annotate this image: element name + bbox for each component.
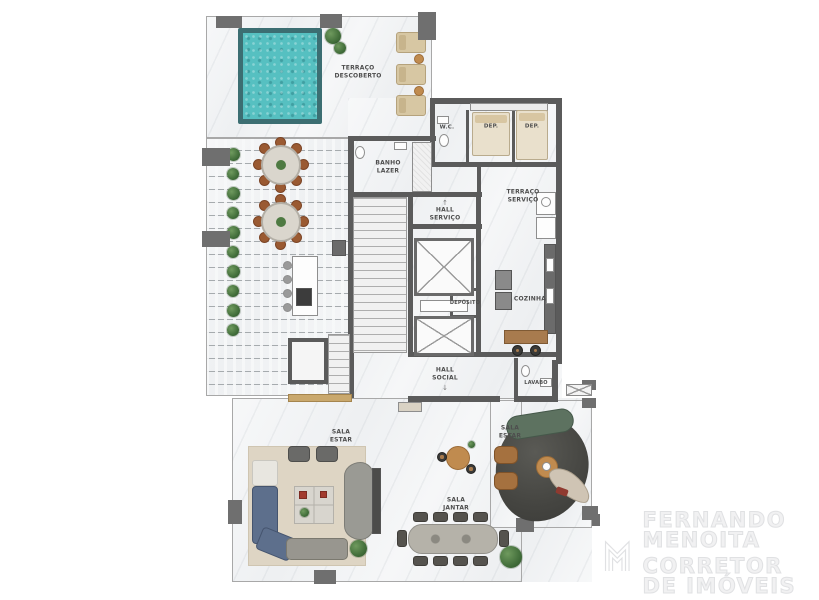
- bar-stool: [283, 303, 292, 312]
- elevator: [414, 238, 474, 296]
- column: [418, 12, 436, 40]
- wall: [352, 136, 436, 141]
- wall: [408, 194, 413, 356]
- side-table: [414, 86, 424, 96]
- bbq-counter: [332, 240, 346, 256]
- stove: [546, 288, 554, 304]
- wall: [556, 98, 562, 244]
- wall: [512, 110, 515, 167]
- chaise-curved: [344, 462, 374, 540]
- console-table: [398, 402, 422, 412]
- room-label-sala-jantar: SALA JANTAR: [443, 497, 469, 512]
- dining-chair: [473, 512, 488, 522]
- side-stool: [466, 464, 476, 474]
- room-label-lavabo: LAVABO: [524, 380, 547, 386]
- dining-chair: [433, 556, 448, 566]
- logo-tagline: CORRETOR DE IMÓVEIS: [643, 557, 802, 597]
- hedge-plant: [227, 207, 239, 219]
- bar-counter: [292, 256, 318, 316]
- small-plant: [468, 441, 475, 448]
- table-top: [261, 202, 301, 242]
- sun-lounger: [396, 64, 426, 85]
- room-label-cozinha: COZINHA: [514, 295, 546, 303]
- bar-stool: [283, 289, 292, 298]
- duct-shaft: [566, 384, 592, 396]
- dining-chair: [413, 556, 428, 566]
- entry-arrow-icon: ↑: [442, 199, 448, 207]
- bed: [472, 112, 510, 156]
- dining-chair: [397, 530, 407, 547]
- elevator: [414, 316, 474, 356]
- tv-console: [372, 468, 381, 534]
- hedge-plant: [227, 246, 239, 258]
- wc-toilet: [439, 134, 449, 147]
- room-label-sala-estar-left: SALA ESTAR: [330, 429, 352, 444]
- room-label-banho-lazer: BANHO LAZER: [375, 160, 400, 175]
- kitchen-island: [504, 330, 548, 344]
- swimming-pool: [238, 28, 322, 124]
- lavabo-toilet: [521, 365, 530, 377]
- room-label-terraco-descoberto: TERRAÇO DESCOBERTO: [334, 65, 381, 80]
- private-elevator: [288, 338, 328, 384]
- column: [202, 231, 230, 247]
- sofa-gray: [286, 538, 348, 560]
- column: [320, 14, 342, 28]
- sink: [394, 142, 407, 150]
- dining-table: [408, 524, 498, 554]
- social-stairs: [328, 334, 350, 394]
- column: [592, 514, 600, 526]
- wall: [410, 224, 482, 229]
- wc-sink: [437, 116, 449, 124]
- bed: [516, 110, 548, 160]
- wall: [514, 358, 518, 402]
- table-decor: [299, 491, 307, 499]
- hedge-plant: [227, 265, 240, 278]
- brand-logo: FERNANDO MENOITA CORRETOR DE IMÓVEIS: [602, 516, 802, 592]
- logo-line2: MENOITA: [643, 531, 802, 551]
- wall: [466, 110, 469, 167]
- floor-plant: [350, 540, 367, 557]
- entry-arrow-icon: ↓: [442, 384, 448, 392]
- armchair: [288, 446, 310, 462]
- washer-drum: [541, 197, 551, 207]
- room-label-deposito: DEPÓSITO: [450, 300, 480, 306]
- table-decor: [320, 491, 327, 498]
- table-plant: [300, 508, 309, 517]
- wall: [430, 162, 562, 167]
- room-label-hall-servico: HALL SERVIÇO: [430, 207, 461, 222]
- shower: [412, 142, 432, 192]
- column: [228, 500, 242, 524]
- round-dining-table: [253, 194, 309, 250]
- side-table: [414, 54, 424, 64]
- bar-stool: [283, 261, 292, 270]
- hedge-plant: [227, 168, 239, 180]
- floorplan-canvas: TERRAÇO DESCOBERTO W.C. DEP. DEP. BANHO …: [0, 0, 819, 600]
- hedge-plant: [227, 285, 239, 297]
- island-stool: [512, 345, 523, 356]
- dining-chair: [413, 512, 428, 522]
- dining-chair: [453, 556, 468, 566]
- logo-text: FERNANDO MENOITA CORRETOR DE IMÓVEIS: [643, 511, 802, 597]
- column: [582, 398, 596, 408]
- island-stool: [530, 345, 541, 356]
- hedge-plant: [227, 324, 239, 336]
- plant: [334, 42, 346, 54]
- bar-stool: [283, 275, 292, 284]
- wall: [556, 244, 562, 364]
- room-label-terraco-servico: TERRAÇO SERVIÇO: [507, 189, 540, 204]
- column: [202, 148, 230, 166]
- wall: [477, 162, 481, 196]
- grill: [296, 288, 312, 306]
- side-stool: [437, 452, 447, 462]
- logo-monogram-icon: [602, 521, 633, 587]
- wall: [476, 194, 481, 356]
- hedge-plant: [227, 304, 240, 317]
- room-label-dep-2: DEP.: [525, 124, 539, 131]
- laundry-sink: [536, 217, 556, 239]
- toilet: [355, 146, 365, 159]
- room-label-wc: W.C.: [440, 125, 455, 132]
- deck-strip: [288, 394, 352, 402]
- armchair: [316, 446, 338, 462]
- pouf: [494, 472, 518, 490]
- column: [216, 16, 242, 28]
- fridge: [495, 270, 512, 290]
- floor-plant: [500, 546, 522, 568]
- oven-tower: [495, 292, 512, 310]
- dining-chair: [499, 530, 509, 547]
- service-stairs: [353, 197, 407, 353]
- table-top: [261, 145, 301, 185]
- room-label-dep-1: DEP.: [484, 124, 498, 131]
- kitchen-sink: [546, 258, 554, 272]
- dining-chair: [473, 556, 488, 566]
- dining-chair: [433, 512, 448, 522]
- round-dining-table: [253, 137, 309, 193]
- hedge-plant: [227, 187, 240, 200]
- sofa-chaise-white: [252, 460, 278, 486]
- pouf: [494, 446, 518, 464]
- wall: [516, 396, 558, 402]
- dining-chair: [453, 512, 468, 522]
- sun-lounger: [396, 95, 426, 116]
- table-tray: [542, 462, 551, 471]
- column: [314, 570, 336, 584]
- room-label-hall-social: HALL SOCIAL: [432, 367, 458, 382]
- room-label-sala-estar-right: SALA ESTAR: [499, 425, 521, 440]
